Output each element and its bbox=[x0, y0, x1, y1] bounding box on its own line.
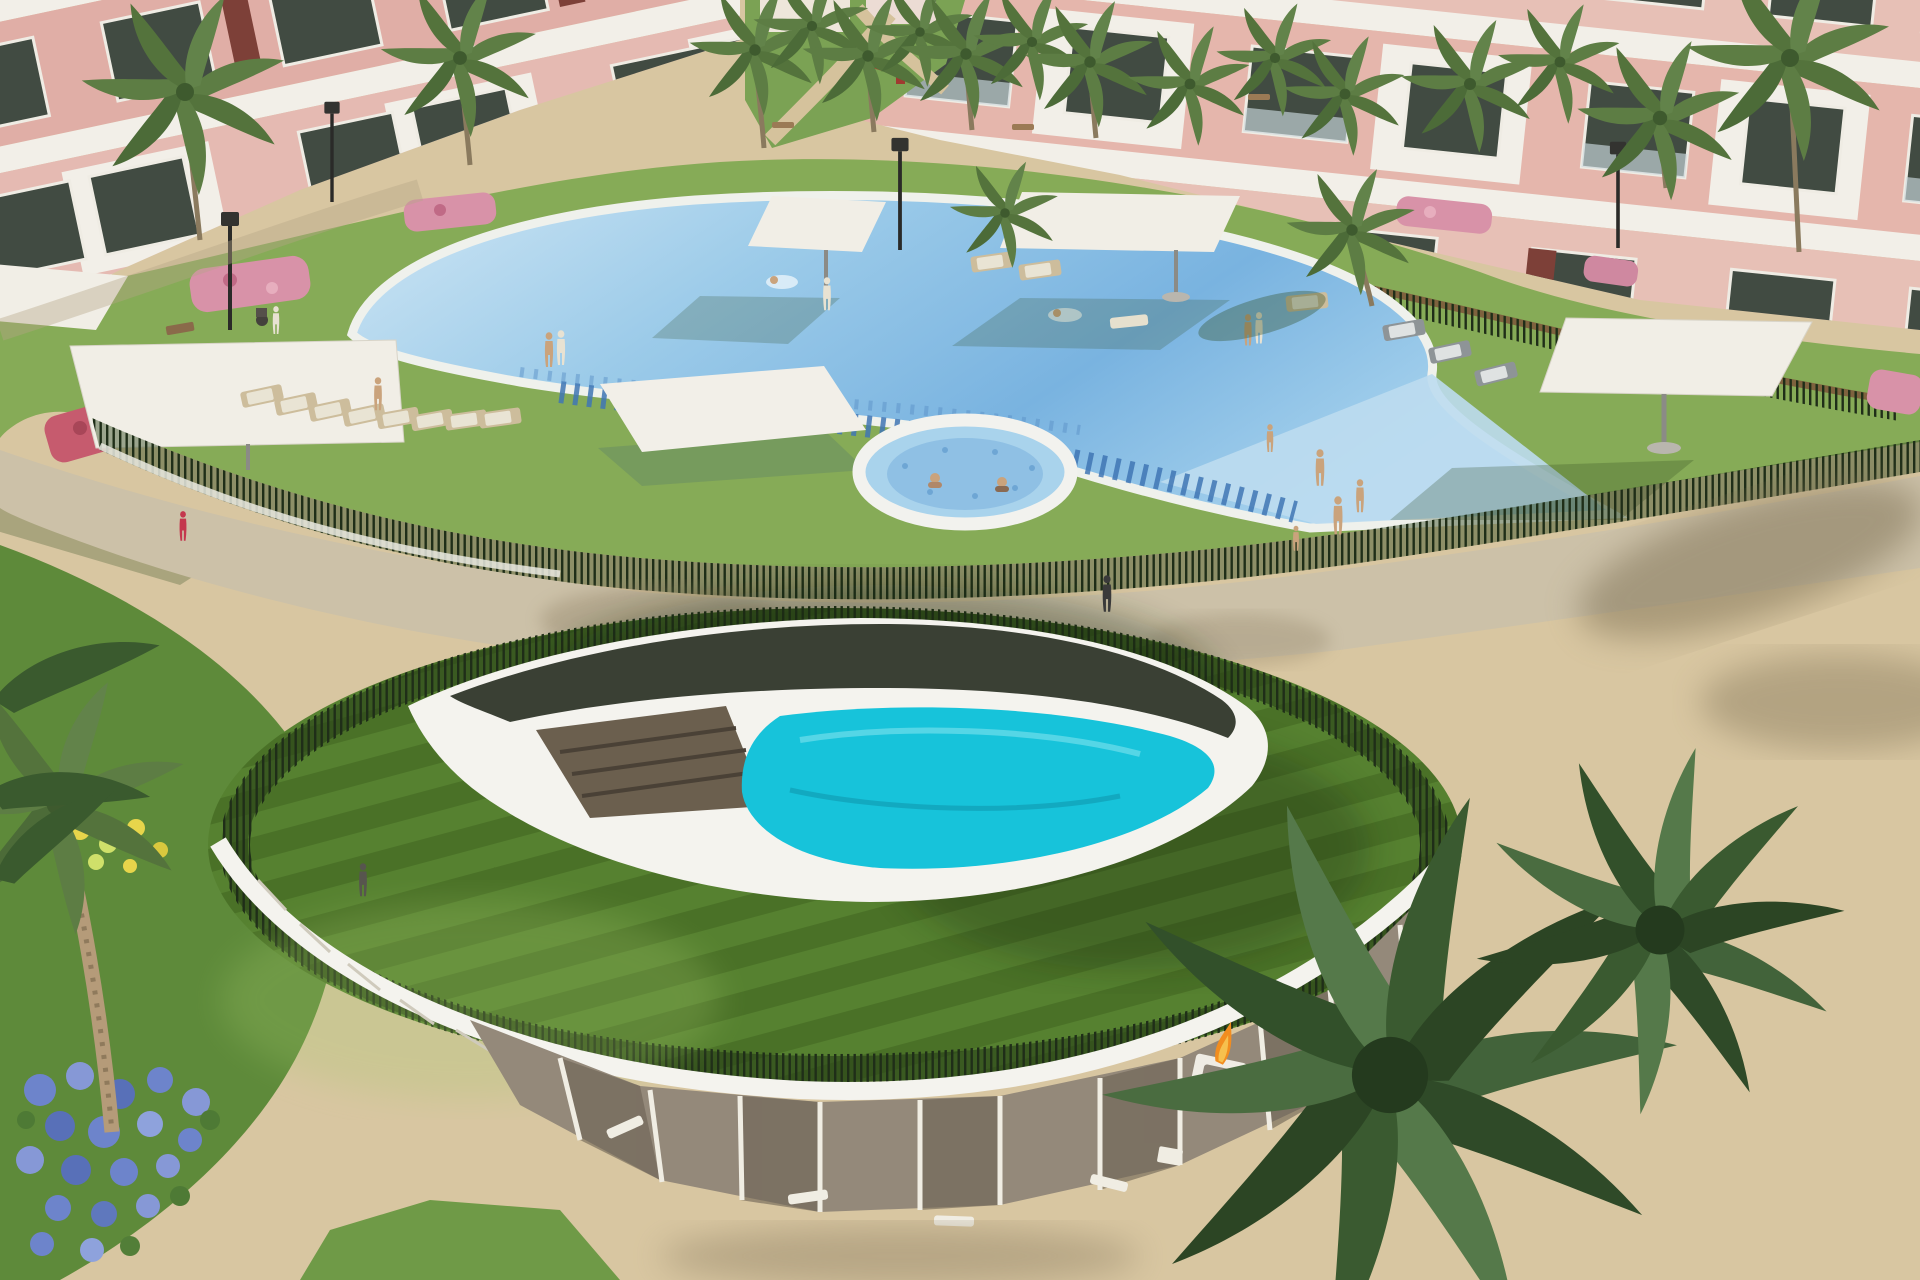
parasol-canopy bbox=[1540, 318, 1812, 396]
kids-pool bbox=[859, 420, 1071, 524]
parasol-canopy bbox=[748, 196, 886, 252]
rendering-canvas bbox=[0, 0, 1920, 1280]
